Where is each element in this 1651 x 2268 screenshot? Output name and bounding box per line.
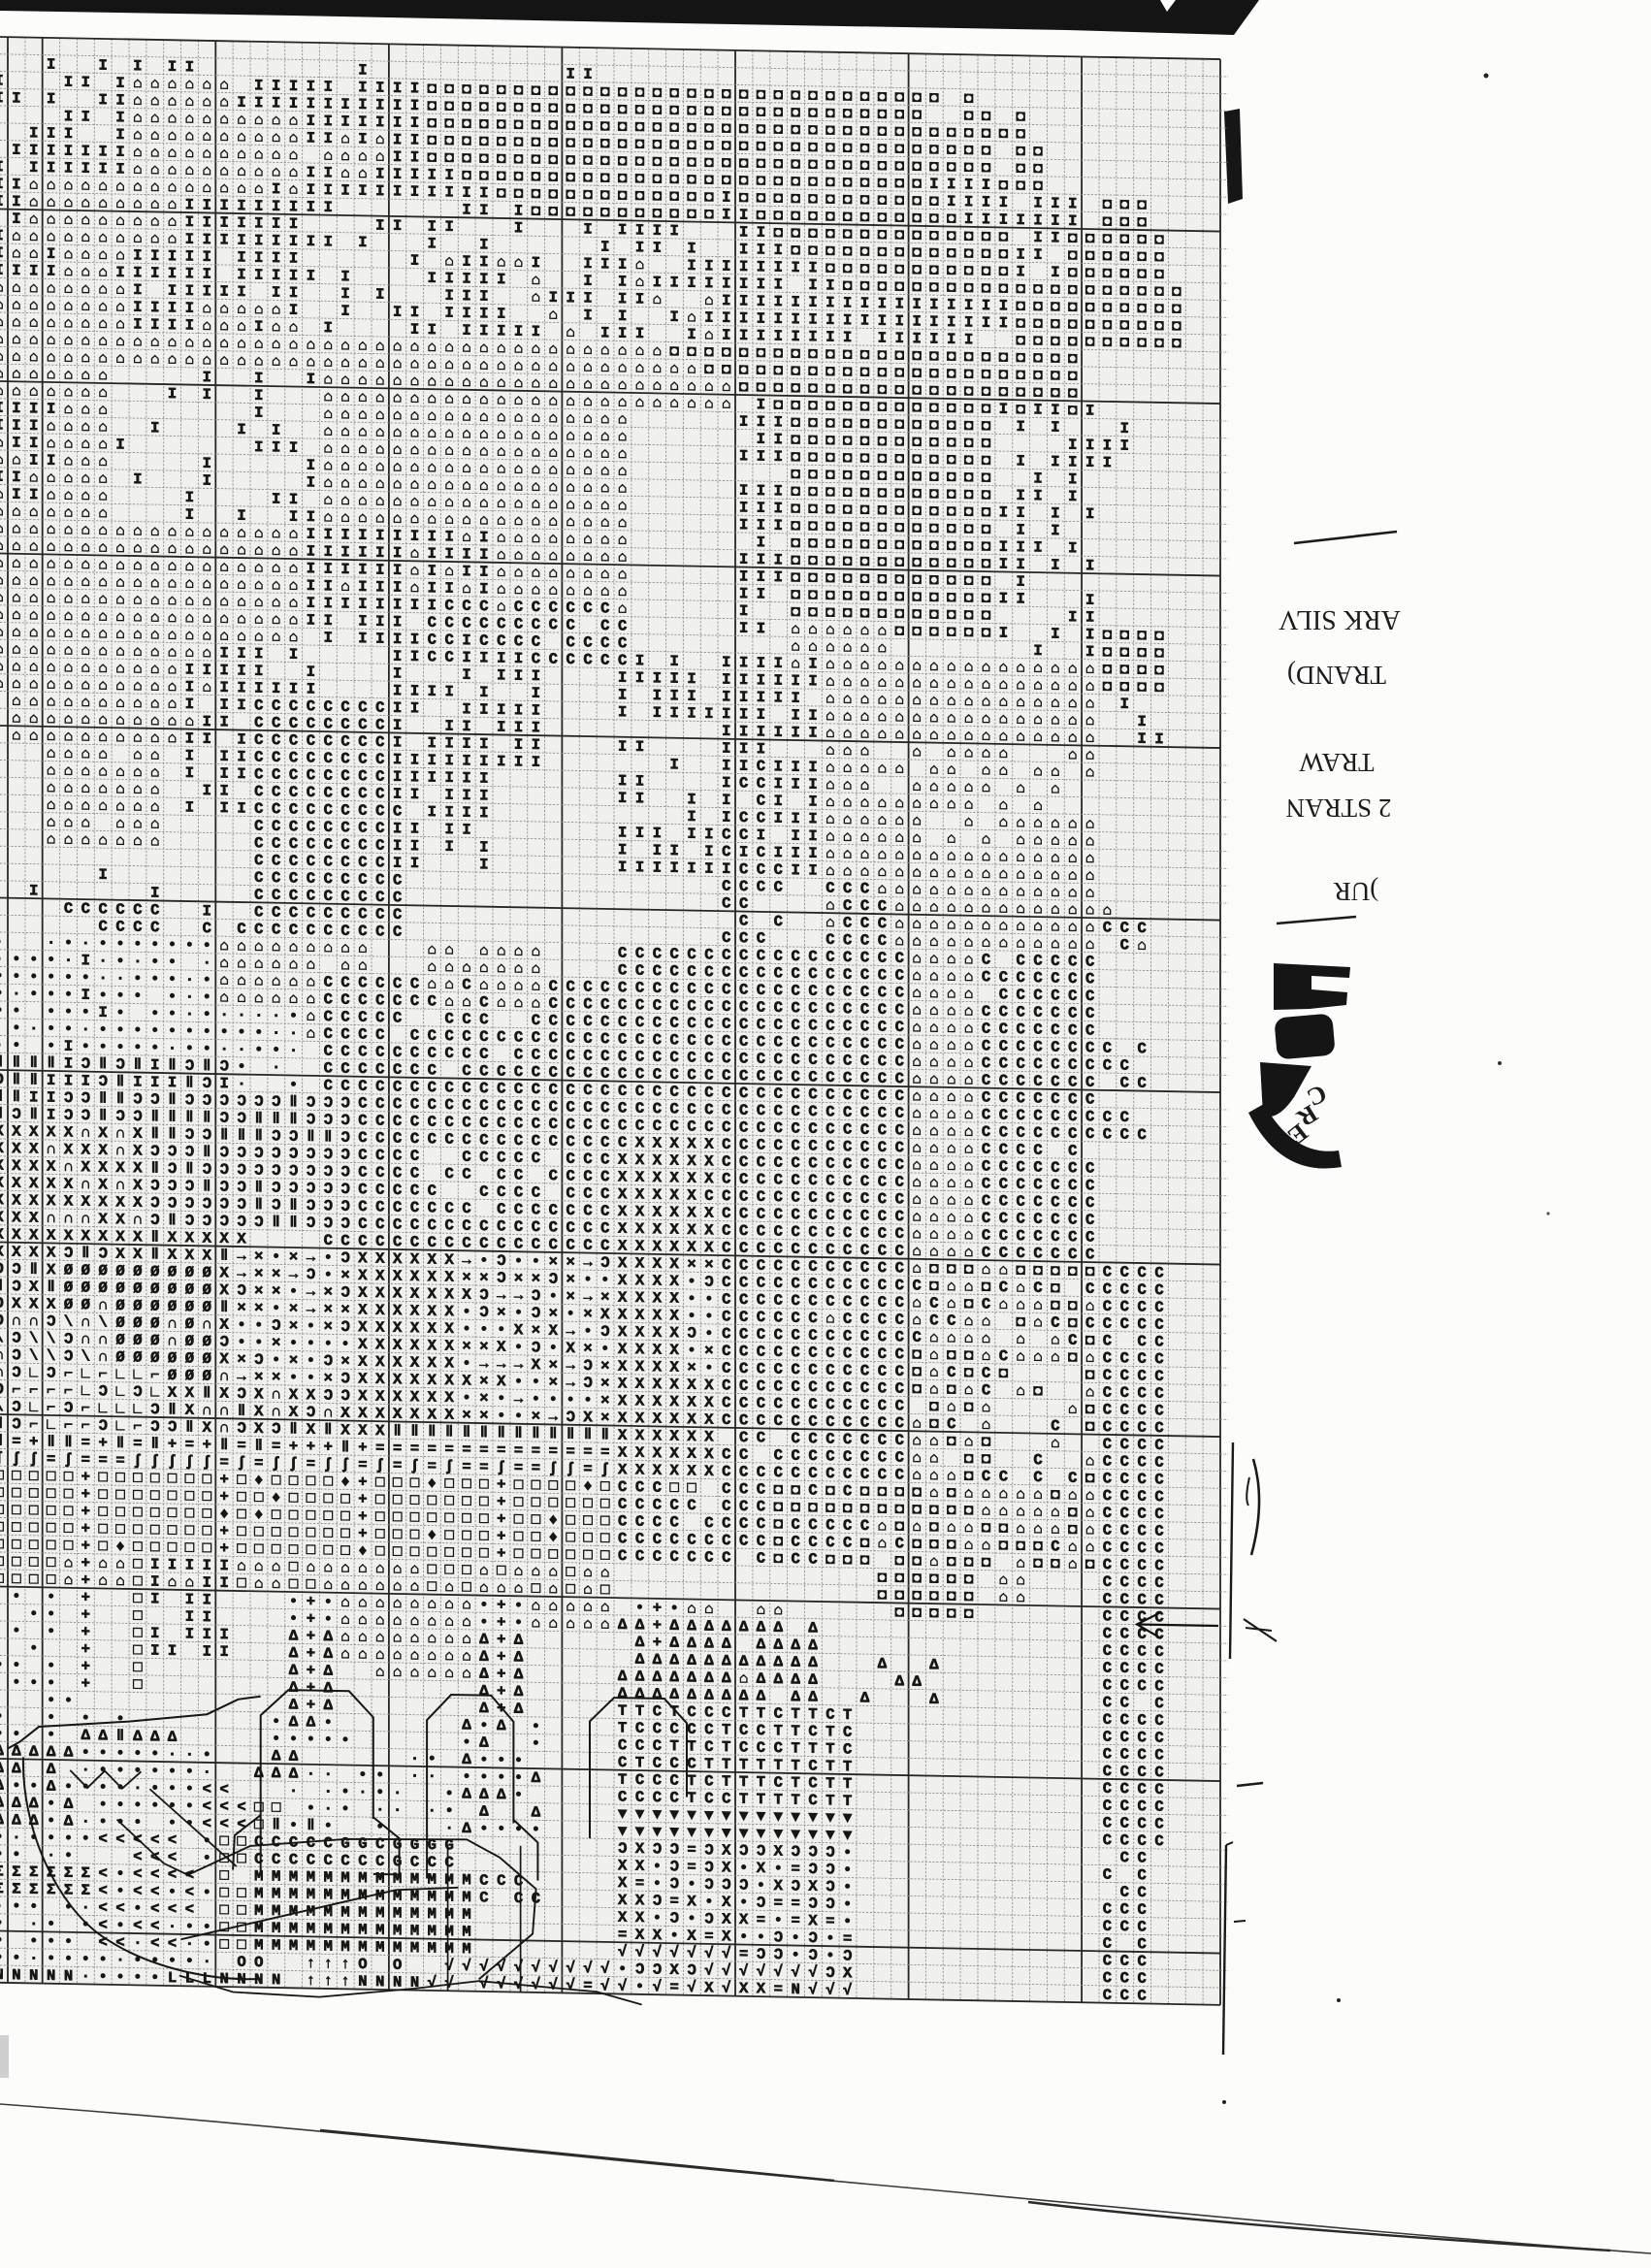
svg-text:)UR: )UR xyxy=(1334,877,1379,906)
svg-text:2 STRAN: 2 STRAN xyxy=(1286,794,1392,823)
svg-text:ARK SILV: ARK SILV xyxy=(1279,604,1401,634)
svg-text:TRAND): TRAND) xyxy=(1287,661,1386,690)
svg-text:TRAW: TRAW xyxy=(1299,748,1375,777)
